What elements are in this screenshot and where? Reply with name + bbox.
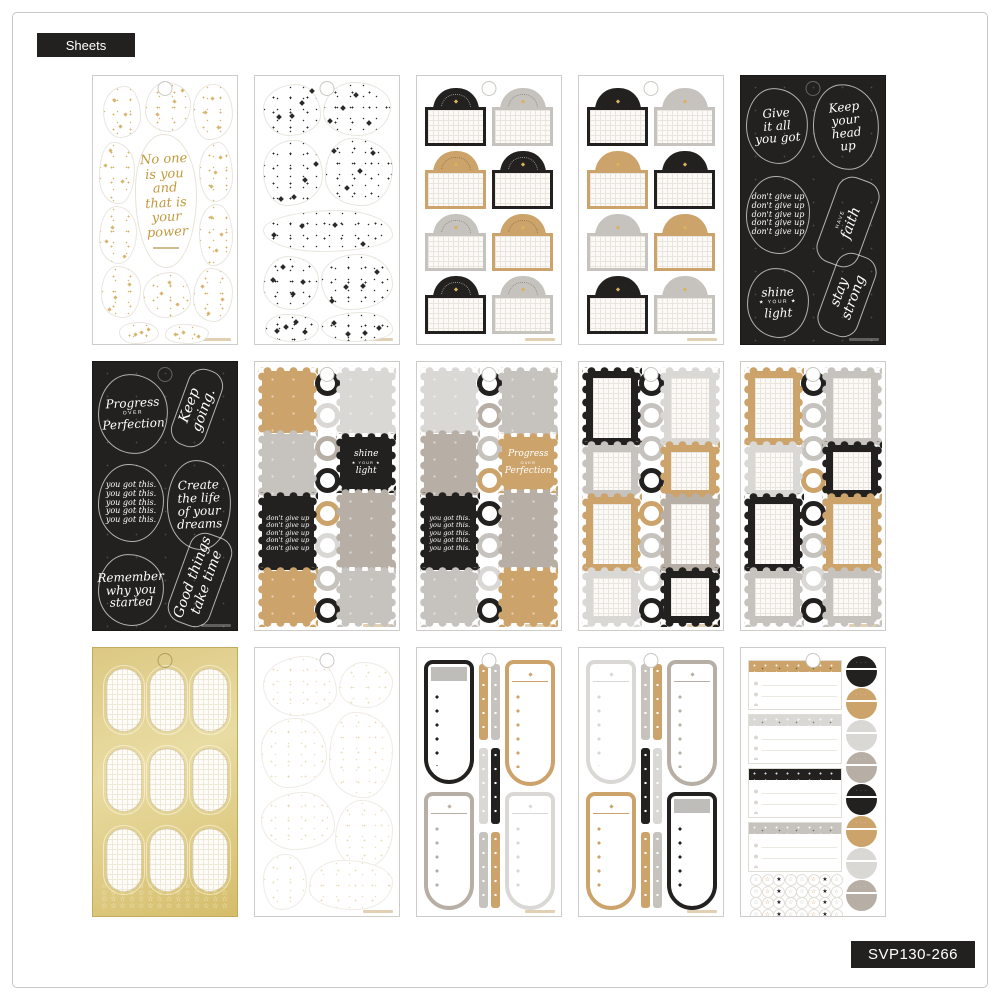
sparkle-icon (113, 295, 117, 299)
sticker-sheet-gold-sparkle-quote-diecuts: No oneis youandthat isyourpower (92, 75, 238, 345)
star-sticker: ☆ (808, 909, 820, 918)
star-sticker: ☆ (762, 897, 774, 909)
ring-column (800, 371, 827, 623)
sparkle-icon (219, 155, 223, 159)
blob-sticker (263, 84, 321, 136)
sparkle-icon (302, 329, 308, 335)
ring-sticker (639, 468, 664, 493)
star-sticker: ☆ (785, 874, 797, 886)
sparkle-icon (362, 331, 368, 337)
sheet-watermark (849, 624, 879, 627)
ring-sticker (801, 468, 826, 493)
bookmark-sticker (424, 660, 474, 784)
frame-sticker (748, 371, 800, 445)
blob-sticker (263, 256, 319, 310)
frame-window (833, 452, 871, 490)
sparkle-icon (197, 334, 201, 338)
arch-label-sticker (425, 214, 486, 274)
punch-hole (806, 653, 821, 668)
bookmark-header (593, 667, 629, 682)
scallop-sticker (340, 571, 392, 623)
list-box-sticker (748, 822, 842, 872)
quote-sticker: Giveit allyou got (743, 86, 810, 166)
frame-sticker (664, 497, 716, 571)
oval-label-sticker (149, 668, 185, 732)
sheet-watermark (687, 624, 717, 627)
sparkle-icon (215, 248, 219, 252)
frame-sticker (586, 445, 638, 497)
strip-sticker (653, 664, 662, 740)
star-sticker: ☆ (750, 897, 762, 909)
star-sticker: ☆ (831, 897, 843, 909)
ring-sticker (477, 436, 502, 461)
arch-label-grid (425, 88, 553, 336)
arch-label-sticker (492, 151, 553, 211)
punch-hole (644, 367, 659, 382)
half-circle-sticker: · · · (846, 784, 877, 815)
sheet-watermark (525, 624, 555, 627)
product-image: Sheets SVP130-266 No oneis youandthat is… (0, 0, 1000, 1000)
star-sticker: ☆ (785, 897, 797, 909)
bookmark-sticker (505, 792, 555, 910)
bookmark-sticker (505, 660, 555, 786)
half-circle-label: · · · (846, 820, 877, 825)
scallop-column-left (748, 371, 800, 623)
strip-sticker (653, 748, 662, 824)
sheets-grid: No oneis youandthat isyourpowerGiveit al… (92, 75, 886, 917)
half-circle-sticker: · · · (846, 656, 877, 687)
quote-sticker: staystrong (813, 248, 881, 341)
scallop-sticker (502, 371, 554, 433)
punch-hole (482, 653, 497, 668)
star-icon (682, 162, 686, 166)
blob-sticker (263, 140, 323, 206)
star-sticker: ★ (819, 897, 831, 909)
sheet-watermark (849, 338, 879, 341)
label-box (492, 170, 553, 209)
half-circle-sticker: · · · (846, 720, 877, 751)
frame-sticker (664, 371, 716, 445)
label-box (654, 295, 715, 334)
sparkle-icon (174, 332, 178, 336)
sticker-sheet-quotes-black-2: ProgressOVERPerfectionKeep going.you got… (92, 361, 238, 631)
star-sticker: ☆ (762, 886, 774, 898)
sparkle-icon (176, 303, 180, 307)
sparkle-icon (353, 93, 359, 99)
bookmark-sticker (667, 792, 717, 910)
star-sticker: ☆ (831, 909, 843, 918)
sparkle-icon (123, 254, 127, 258)
oval-label-sticker (106, 828, 142, 892)
ring-sticker (315, 403, 340, 428)
punch-hole (482, 367, 497, 382)
sticker-sheet-scallop-frames-1 (578, 361, 724, 631)
ring-sticker (315, 436, 340, 461)
list-lines (762, 847, 837, 868)
scallop-column-left: you got this.you got this.you got this.y… (424, 371, 476, 623)
arch-label-sticker (654, 88, 715, 148)
scallop-column-right (664, 371, 716, 623)
arch-label-sticker (492, 88, 553, 148)
oval-label-sticker (192, 668, 228, 732)
ring-sticker (801, 501, 826, 526)
ring-sticker (639, 598, 664, 623)
scallop-sticker (424, 434, 476, 496)
star-icon (615, 225, 619, 229)
star-icon (453, 225, 457, 229)
half-circle-label: · · · (846, 756, 877, 761)
bookmark-header (431, 799, 467, 814)
arch-label-grid (587, 88, 715, 336)
blob-sticker (263, 854, 307, 910)
frame-window (755, 578, 793, 616)
diamond-icon (447, 804, 451, 808)
frame-sticker (586, 371, 638, 445)
blob-sticker (99, 206, 137, 264)
frame-sticker (748, 445, 800, 497)
scallop-sticker (262, 371, 314, 433)
half-circle-sticker: · · · (846, 880, 877, 911)
star-sticker: ☆ (808, 897, 820, 909)
sparkle-icon (160, 291, 164, 295)
ring-sticker (639, 501, 664, 526)
blob-sticker (165, 324, 209, 344)
frame-window (755, 504, 793, 564)
ring-sticker (477, 566, 502, 591)
sparkle-icon (104, 240, 108, 244)
oval-label-sticker (106, 748, 142, 812)
sparkle-icon (173, 100, 177, 104)
strip-sticker (479, 664, 488, 740)
sparkle-icon (220, 297, 224, 301)
quote-sticker: Keepyourheadup (809, 81, 884, 173)
sparkle-icon (209, 185, 213, 189)
frame-sticker (826, 445, 878, 497)
list-lines (762, 793, 837, 814)
punch-hole (806, 367, 821, 382)
sparkle-icon (333, 222, 339, 228)
sparkle-icon (109, 148, 113, 152)
label-box (587, 233, 648, 272)
star-sticker: ☆ (762, 909, 774, 918)
scallop-sticker: ProgressOVERPerfection (502, 437, 554, 489)
sticker-sheet-bookmark-tabs-2 (578, 647, 724, 917)
star-sticker: ★ (773, 886, 785, 898)
half-circle-sticker: · · · (846, 688, 877, 719)
blob-sticker (261, 792, 335, 850)
sheet-watermark (363, 624, 393, 627)
blob-sticker (321, 254, 393, 310)
ring-sticker (315, 468, 340, 493)
star-sticker: ★ (819, 886, 831, 898)
label-box (654, 107, 715, 146)
strip-sticker (491, 664, 500, 740)
sparkle-icon (200, 284, 204, 288)
star-icon (615, 162, 619, 166)
star-sticker: ☆ (785, 909, 797, 918)
tile-quote: shine★ YOUR ★light (340, 437, 392, 489)
star-sticker: ☆ (831, 886, 843, 898)
half-circle-label: · · · (846, 724, 877, 729)
ring-sticker (801, 403, 826, 428)
punch-hole (320, 81, 335, 96)
scallop-sticker (502, 493, 554, 567)
star-sticker: ☆ (750, 874, 762, 886)
blob-sticker (335, 800, 393, 868)
ring-sticker (315, 566, 340, 591)
sparkle-icon (219, 233, 223, 237)
bookmark-header (674, 799, 710, 813)
sparkle-icon (112, 98, 116, 102)
ring-sticker (801, 533, 826, 558)
scallop-sticker: don't give updon't give updon't give upd… (262, 496, 314, 570)
star-sticker: ☆ (796, 886, 808, 898)
ring-sticker (477, 533, 502, 558)
sticker-sheet-arch-labels-plain (578, 75, 724, 345)
blob-sticker (101, 266, 141, 318)
arch-label-sticker (654, 151, 715, 211)
frame-sticker (586, 571, 638, 623)
label-box (425, 295, 486, 334)
scallop-sticker: shine★ YOUR ★light (340, 437, 392, 489)
sparkle-icon (332, 149, 338, 155)
label-box (492, 107, 553, 146)
arch-label-sticker (587, 151, 648, 211)
half-circle-label: · · · (846, 884, 877, 889)
sparkle-icon (343, 284, 349, 290)
quote-sticker: shine★ YOUR ★light (746, 267, 810, 339)
star-sticker: ★ (819, 909, 831, 918)
frame-sticker (748, 497, 800, 571)
sparkle-icon (340, 106, 346, 112)
frame-sticker (664, 571, 716, 623)
bookmark-sticker (586, 660, 636, 784)
oval-label-sticker (192, 748, 228, 812)
tile-quote: ProgressOVERPerfection (502, 437, 554, 489)
arch-label-sticker (425, 88, 486, 148)
sparkle-icon (329, 298, 335, 304)
punch-hole (158, 367, 173, 382)
blob-sticker (199, 142, 233, 202)
list-box-sticker (748, 660, 842, 710)
sku-badge: SVP130-266 (851, 941, 975, 968)
sparkle-icon (276, 114, 282, 120)
blob-sticker (265, 314, 319, 342)
sparkle-icon (293, 320, 299, 326)
half-circle-label: · · · (846, 692, 877, 697)
sparkle-icon (370, 150, 376, 156)
sparkle-icon (120, 179, 124, 183)
bookmark-dots (678, 822, 682, 892)
half-circle-sticker: · · · (846, 752, 877, 783)
sparkle-icon (299, 101, 305, 107)
arch-label-sticker (425, 276, 486, 336)
ring-sticker (315, 598, 340, 623)
star-icon (615, 288, 619, 292)
sparkle-icon (283, 324, 289, 330)
quote-sticker: Keep going. (166, 364, 227, 451)
bookmark-dots (516, 822, 520, 892)
quote-attribution (153, 247, 179, 249)
sparkle-icon (376, 325, 382, 331)
sparkle-icon (216, 125, 220, 129)
sparkle-icon (204, 110, 208, 114)
sticker-sheet-scallop-tiles-2: you got this.you got this.you got this.y… (416, 361, 562, 631)
list-box-sticker (748, 768, 842, 818)
frame-sticker (826, 571, 878, 623)
blob-sticker (321, 312, 393, 342)
scallop-column-right: shine★ YOUR ★light (340, 371, 392, 623)
scallop-sticker: you got this.you got this.you got this.y… (424, 496, 476, 570)
diamond-icon (609, 672, 613, 676)
bookmark-sticker (586, 792, 636, 910)
punch-hole (644, 653, 659, 668)
scallop-sticker (424, 371, 476, 433)
blob-sticker (143, 272, 191, 318)
sparkle-icon (331, 320, 337, 326)
strip-sticker (641, 748, 650, 824)
sparkle-icon (366, 120, 372, 126)
arch-label-sticker (425, 151, 486, 211)
sparkle-icon (271, 232, 277, 238)
quote-sticker: you got this.you got this.you got this.y… (98, 464, 164, 542)
scallop-column-right: ProgressOVERPerfection (502, 371, 554, 623)
ring-column (476, 371, 503, 623)
frame-window (755, 452, 793, 490)
sparkle-icon (374, 269, 380, 275)
list-bullets (753, 840, 759, 868)
half-circle-label: · · · (846, 660, 877, 665)
blob-sticker (99, 142, 135, 204)
sparkle-icon (300, 279, 306, 285)
sparkle-icon (290, 292, 296, 298)
ring-sticker (639, 403, 664, 428)
ring-sticker (315, 533, 340, 558)
scallop-sticker (502, 571, 554, 623)
oval-label-sticker (149, 828, 185, 892)
sparkle-icon (313, 161, 319, 167)
strip-sticker (641, 664, 650, 740)
scallop-column-left: don't give updon't give updon't give upd… (262, 371, 314, 623)
star-sticker: ☆ (808, 886, 820, 898)
sparkle-icon (271, 277, 277, 283)
bookmark-dots (678, 690, 682, 768)
sparkle-icon (281, 265, 287, 271)
star-sticker: ★ (773, 897, 785, 909)
label-box (492, 233, 553, 272)
sparkle-icon (302, 177, 308, 183)
frame-sticker (664, 445, 716, 497)
sheet-watermark (687, 910, 717, 913)
scallop-column-right (826, 371, 878, 623)
sparkle-icon (107, 308, 111, 312)
label-box (587, 107, 648, 146)
star-sticker: ☆ (762, 874, 774, 886)
strip-sticker (653, 832, 662, 908)
ring-sticker (477, 468, 502, 493)
frame-window (671, 504, 709, 564)
blob-sticker (329, 712, 393, 798)
ring-column (638, 371, 665, 623)
frame-sticker (586, 497, 638, 571)
bookmark-dots (597, 690, 601, 766)
scallop-sticker (262, 434, 314, 496)
tile-quote: don't give updon't give updon't give upd… (262, 496, 314, 570)
quote-sticker: Good thingstake time (163, 528, 236, 631)
blob-sticker (193, 268, 233, 322)
diamond-icon (528, 804, 532, 808)
sparkle-icon (110, 226, 114, 230)
sparkle-icon (134, 333, 138, 337)
frame-window (671, 378, 709, 438)
star-icon (682, 99, 686, 103)
blob-sticker (339, 662, 393, 708)
ring-column (314, 371, 341, 623)
list-box-header (749, 661, 841, 672)
ring-sticker (639, 533, 664, 558)
star-sticker: ☆ (750, 886, 762, 898)
frame-window (833, 504, 871, 564)
punch-hole (158, 81, 173, 96)
sparkle-icon (103, 164, 107, 168)
scallop-sticker (340, 371, 392, 433)
punch-hole (158, 653, 173, 668)
sheets-badge: Sheets (37, 33, 135, 57)
frame-window (593, 452, 631, 490)
frame-window (593, 578, 631, 616)
blob-sticker (193, 84, 233, 140)
bookmark-dots (435, 822, 439, 892)
bookmark-header (431, 667, 467, 681)
list-lines (762, 739, 837, 760)
sparkle-icon (210, 97, 214, 101)
star-sticker: ☆ (796, 909, 808, 918)
sparkle-icon (156, 112, 160, 116)
list-lines (762, 685, 837, 706)
label-box (654, 170, 715, 209)
frame-window (833, 578, 871, 616)
star-sticker: ☆ (750, 909, 762, 918)
arch-label-sticker (492, 214, 553, 274)
scallop-column-left (586, 371, 638, 623)
diamond-icon (528, 672, 532, 676)
sparkle-icon (345, 331, 351, 337)
star-sticker: ☆ (796, 897, 808, 909)
sticker-sheet-faint-sparkle-diecuts (254, 647, 400, 917)
sticker-sheet-bookmark-tabs-1 (416, 647, 562, 917)
bookmark-dots (435, 690, 439, 766)
oval-label-sticker (149, 748, 185, 812)
sparkle-icon (118, 124, 122, 128)
quote-text: No oneis youandthat isyourpower (140, 152, 192, 242)
star-icon (520, 225, 524, 229)
star-sticker: ☆ (785, 886, 797, 898)
strip-sticker (491, 832, 500, 908)
punch-hole (482, 81, 497, 96)
label-box (587, 295, 648, 334)
bookmark-sticker (424, 792, 474, 910)
quote-sticker: don't give updon't give updon't give upd… (746, 176, 810, 254)
arch-label-sticker (654, 276, 715, 336)
label-box (492, 295, 553, 334)
sparkle-icon (168, 281, 172, 285)
sticker-sheet-scallop-frames-2 (740, 361, 886, 631)
sticker-sheet-arch-labels-arc-text (416, 75, 562, 345)
sparkle-icon (140, 330, 144, 334)
strip-sticker (479, 832, 488, 908)
arch-label-sticker (587, 276, 648, 336)
oval-label-sticker (106, 668, 142, 732)
